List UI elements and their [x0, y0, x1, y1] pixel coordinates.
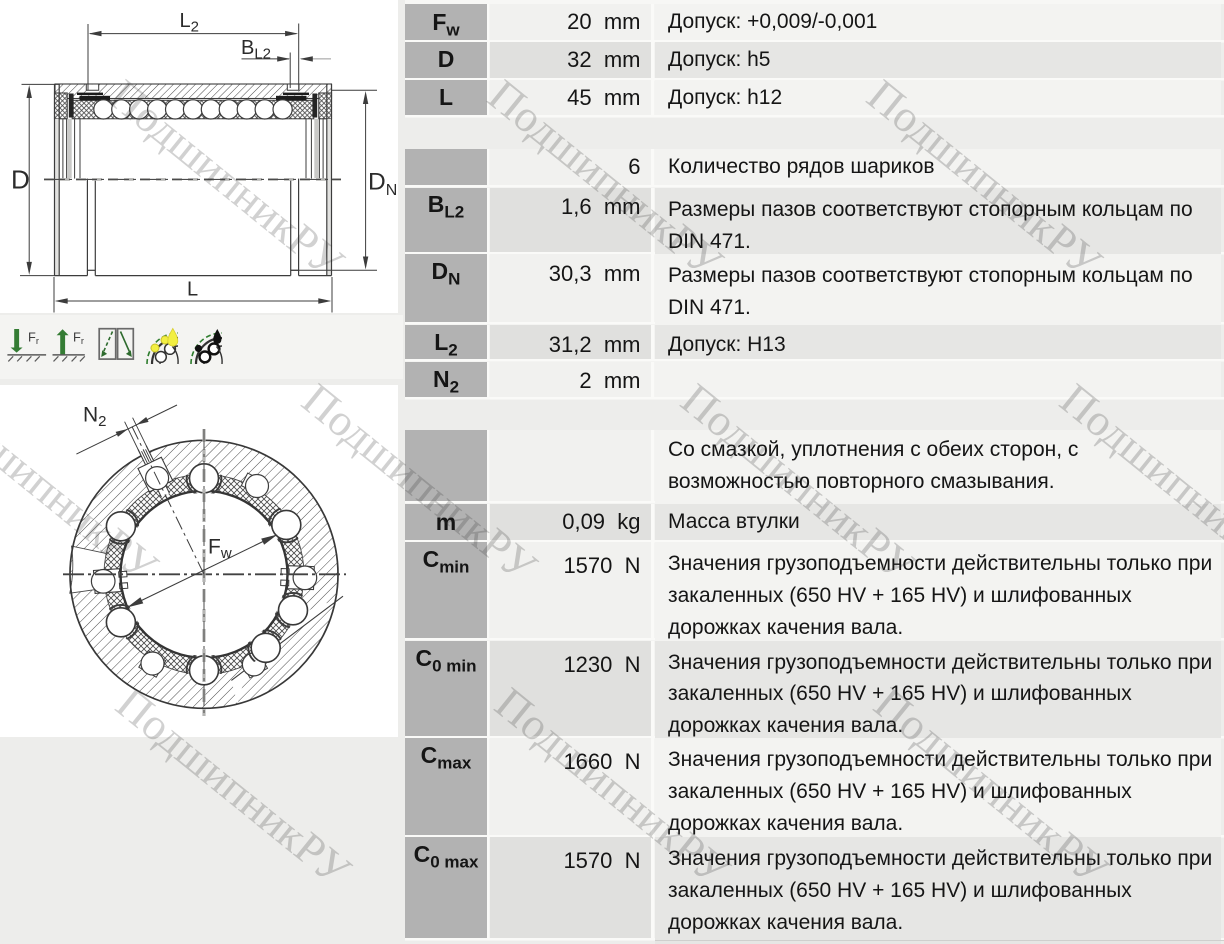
svg-text:Fw: Fw — [208, 536, 232, 563]
svg-text:N2: N2 — [83, 404, 107, 431]
svg-text:Fr: Fr — [73, 330, 84, 348]
svg-text:L2: L2 — [180, 10, 199, 36]
svg-text:DN: DN — [368, 169, 397, 200]
svg-text:L: L — [187, 279, 198, 301]
svg-text:BL2: BL2 — [241, 37, 271, 63]
svg-text:Fr: Fr — [28, 330, 39, 348]
svg-text:D: D — [11, 165, 30, 195]
